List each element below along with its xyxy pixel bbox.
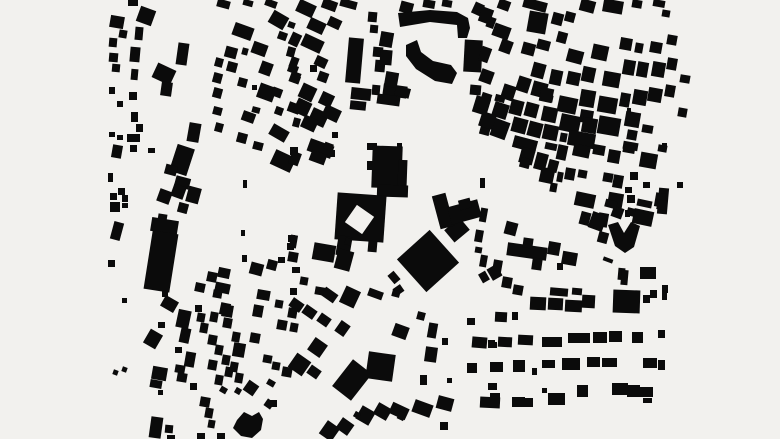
building-footprint <box>288 71 301 85</box>
building-footprint <box>217 433 225 439</box>
building-footprint <box>167 435 175 439</box>
building-footprint <box>488 342 497 348</box>
building-footprint <box>541 106 559 124</box>
building-footprint <box>319 420 340 439</box>
building-footprint <box>574 191 596 209</box>
building-footprint <box>177 202 189 214</box>
building-footprint <box>475 246 483 253</box>
building-footprint <box>370 25 379 34</box>
building-footprint <box>622 59 636 76</box>
building-footprint <box>292 267 300 273</box>
building-footprint <box>592 144 606 156</box>
building-footprint <box>624 111 641 128</box>
building-footprint <box>447 378 452 383</box>
building-footprint <box>619 37 633 51</box>
figure-ground-map <box>0 0 780 439</box>
building-footprint <box>194 282 206 293</box>
building-footprint <box>365 351 395 381</box>
building-footprint <box>603 256 614 263</box>
building-footprint <box>658 330 665 338</box>
building-footprint <box>436 395 455 412</box>
building-footprint <box>207 359 218 370</box>
building-footprint <box>548 393 565 405</box>
building-footprint <box>367 288 384 301</box>
building-footprint <box>281 366 293 378</box>
building-footprint <box>131 69 139 81</box>
building-footprint <box>268 10 290 31</box>
building-footprint <box>207 419 215 428</box>
building-footprint <box>278 257 285 263</box>
building-footprint <box>109 132 115 137</box>
building-footprint <box>424 346 438 363</box>
building-footprint <box>677 107 687 117</box>
building-footprint <box>117 101 123 107</box>
building-footprint <box>597 115 622 137</box>
building-footprint <box>122 195 128 202</box>
building-footprint <box>252 304 264 318</box>
building-footprint <box>162 290 168 297</box>
building-footprint <box>117 135 123 140</box>
building-footprint <box>339 0 357 10</box>
building-footprint <box>262 354 272 363</box>
building-footprint <box>184 351 196 368</box>
building-footprint <box>640 387 653 397</box>
building-footprint <box>581 66 597 83</box>
building-footprint <box>515 75 532 93</box>
building-footprint <box>634 42 644 53</box>
building-footprint <box>556 144 569 161</box>
building-footprint <box>204 407 214 418</box>
building-footprint <box>548 298 564 311</box>
building-footprint <box>217 267 231 279</box>
building-footprint <box>212 289 222 298</box>
building-footprint <box>129 47 140 63</box>
building-footprint <box>196 312 205 322</box>
building-footprint <box>551 12 565 26</box>
building-footprint <box>176 372 187 383</box>
building-footprint <box>501 276 513 289</box>
building-footprint <box>199 396 211 408</box>
building-footprint <box>221 354 231 365</box>
building-footprint <box>581 117 598 134</box>
building-footprint <box>613 290 641 314</box>
building-footprint <box>467 318 475 325</box>
building-footprint <box>368 12 378 23</box>
building-footprint <box>266 259 278 271</box>
building-footprint <box>530 62 546 80</box>
building-footprint <box>420 375 427 385</box>
building-footprint <box>122 203 128 208</box>
building-footprint <box>344 238 351 246</box>
building-footprint <box>206 271 218 283</box>
building-footprint <box>602 71 621 89</box>
building-footprint <box>345 37 364 83</box>
building-footprint <box>559 132 567 142</box>
building-footprint <box>549 182 557 192</box>
building-footprint <box>632 332 643 343</box>
building-footprint <box>562 358 580 370</box>
building-footprint <box>256 289 271 301</box>
building-footprint <box>488 383 497 390</box>
building-footprint <box>224 46 238 60</box>
building-footprint <box>498 337 513 348</box>
building-footprint <box>306 364 322 379</box>
building-footprint-polygon <box>608 222 640 253</box>
building-footprint <box>647 87 663 103</box>
building-footprint <box>136 124 143 132</box>
building-footprint <box>513 360 525 372</box>
building-footprint <box>350 100 367 111</box>
building-footprint <box>625 187 632 193</box>
building-footprint <box>307 337 328 358</box>
building-footprint <box>530 297 547 311</box>
building-footprint <box>128 0 138 6</box>
building-footprint-polygon <box>233 412 263 438</box>
building-footprint <box>241 230 245 236</box>
building-footprint <box>292 117 301 128</box>
building-footprint <box>221 304 234 318</box>
building-footprint <box>276 319 288 331</box>
building-footprint <box>391 323 410 340</box>
building-footprint <box>129 92 137 100</box>
building-footprint <box>108 173 113 182</box>
building-footprint <box>397 230 459 292</box>
building-footprint <box>249 332 261 344</box>
building-footprint <box>631 0 642 9</box>
building-footprint <box>121 366 127 372</box>
building-footprint <box>264 0 278 9</box>
building-footprint <box>661 9 670 17</box>
building-footprint <box>602 0 624 15</box>
building-footprint <box>411 399 433 418</box>
building-footprint <box>110 202 120 212</box>
building-footprint <box>636 61 649 78</box>
building-footprint-polygon <box>406 40 457 84</box>
building-footprint <box>122 298 127 303</box>
building-footprint <box>398 160 408 188</box>
building-footprint <box>234 372 244 383</box>
building-footprint <box>160 81 173 96</box>
building-footprint <box>148 148 155 153</box>
building-footprint <box>522 0 548 13</box>
building-footprint <box>523 102 539 119</box>
building-footprint <box>643 398 652 403</box>
building-footprint <box>136 6 157 27</box>
building-footprint <box>367 161 374 170</box>
building-footprint <box>651 61 666 78</box>
building-footprint <box>679 74 690 84</box>
building-footprint <box>577 169 587 178</box>
building-footprint <box>480 178 485 188</box>
building-footprint <box>310 65 317 72</box>
building-footprint <box>270 400 277 407</box>
building-footprint <box>542 388 547 393</box>
building-footprint <box>579 0 597 14</box>
building-footprint <box>442 338 448 345</box>
building-footprint <box>110 221 124 241</box>
building-footprint <box>658 360 665 370</box>
building-footprint <box>512 397 525 407</box>
building-footprint <box>542 124 560 142</box>
building-footprint <box>243 380 260 397</box>
building-footprint <box>602 358 617 367</box>
building-footprint <box>130 145 137 152</box>
building-footprint <box>242 0 253 7</box>
building-footprint <box>287 307 298 318</box>
building-footprint <box>195 305 202 312</box>
building-footprint <box>498 38 514 54</box>
building-footprint <box>497 0 512 12</box>
building-footprint <box>241 47 249 55</box>
building-footprint <box>108 260 115 267</box>
building-footprint <box>258 60 274 76</box>
building-footprint <box>158 390 163 395</box>
building-footprint <box>619 92 631 108</box>
building-footprint <box>252 141 264 151</box>
building-footprint <box>597 95 618 114</box>
building-footprint <box>564 167 576 181</box>
building-footprint <box>531 257 543 270</box>
building-footprint <box>251 106 260 114</box>
building-footprint <box>550 287 569 297</box>
building-footprint <box>579 89 597 108</box>
building-footprint <box>532 368 537 375</box>
building-footprint <box>510 116 528 134</box>
building-footprint <box>134 27 143 41</box>
building-footprint <box>664 84 676 98</box>
building-footprint <box>549 69 564 86</box>
building-footprint <box>252 85 257 90</box>
building-footprint <box>440 422 448 430</box>
building-footprint <box>636 199 652 209</box>
building-footprint <box>602 172 613 183</box>
building-footprint <box>144 230 179 292</box>
building-footprint <box>109 53 119 63</box>
building-footprint <box>643 295 650 303</box>
building-footprint <box>332 132 338 138</box>
building-footprint <box>632 89 648 106</box>
building-footprint <box>301 304 317 320</box>
building-footprint <box>542 337 562 347</box>
building-footprint <box>317 71 330 84</box>
building-footprint <box>118 188 125 195</box>
building-footprint <box>480 340 485 347</box>
building-footprint <box>286 46 296 58</box>
building-footprint <box>229 361 239 372</box>
building-footprint <box>190 383 197 390</box>
building-footprint <box>175 309 191 329</box>
building-footprint <box>490 393 500 402</box>
building-footprint <box>508 99 524 117</box>
building-footprint <box>387 271 400 285</box>
building-footprint <box>479 254 488 267</box>
building-footprint <box>620 270 628 286</box>
building-footprint <box>544 142 557 151</box>
building-footprint <box>379 50 392 66</box>
building-footprint <box>416 311 426 321</box>
building-footprint <box>234 387 242 395</box>
building-footprint <box>165 425 174 434</box>
building-footprint <box>110 193 117 200</box>
building-footprint <box>226 61 238 73</box>
building-footprint <box>212 106 223 116</box>
building-footprint <box>556 31 569 44</box>
building-footprint <box>379 31 394 48</box>
building-footprint <box>243 180 247 188</box>
building-footprint <box>274 299 283 308</box>
building-footprint <box>212 72 223 84</box>
building-footprint <box>467 363 477 373</box>
building-footprint <box>566 71 581 86</box>
building-footprint <box>564 11 576 23</box>
building-footprint <box>321 0 339 12</box>
building-footprint <box>565 300 583 313</box>
building-footprint <box>266 378 276 387</box>
building-footprint <box>149 379 162 389</box>
building-footprint <box>568 333 590 343</box>
building-footprint <box>299 276 308 285</box>
building-footprint <box>231 22 254 41</box>
building-footprint <box>214 122 224 133</box>
building-footprint <box>512 312 518 320</box>
building-footprint <box>175 347 182 353</box>
building-footprint <box>557 95 579 115</box>
building-footprint <box>250 41 268 57</box>
building-footprint <box>232 342 246 358</box>
building-footprint <box>470 85 482 96</box>
building-footprint <box>222 317 233 328</box>
building-footprint <box>316 312 332 327</box>
building-footprint <box>289 322 298 332</box>
building-footprint <box>231 331 241 342</box>
building-footprint <box>609 331 622 342</box>
building-footprint <box>300 33 325 54</box>
building-footprint <box>557 263 563 270</box>
building-footprint <box>591 44 610 62</box>
building-footprint <box>368 241 378 253</box>
building-footprint <box>662 285 668 293</box>
building-footprint <box>542 360 555 368</box>
building-footprint <box>207 334 218 345</box>
building-footprint <box>493 362 503 372</box>
building-footprint <box>627 195 635 203</box>
building-footprint <box>199 322 209 333</box>
building-footprint <box>109 38 118 48</box>
building-footprint <box>582 295 596 309</box>
building-footprint <box>151 366 168 381</box>
building-footprint <box>176 42 190 65</box>
building-footprint <box>495 312 508 323</box>
building-footprint <box>639 152 658 170</box>
building-footprint <box>288 31 303 47</box>
building-footprint <box>630 172 638 180</box>
building-footprint <box>536 38 551 51</box>
building-footprint <box>328 150 335 157</box>
building-footprint <box>441 0 452 8</box>
building-footprint <box>512 284 524 296</box>
building-footprint <box>268 123 290 142</box>
building-footprint <box>626 129 638 141</box>
building-footprint <box>593 332 607 343</box>
building-footprint <box>526 11 548 35</box>
building-footprint <box>158 322 165 328</box>
building-footprint <box>597 231 610 244</box>
building-footprint <box>295 0 317 18</box>
building-footprint <box>422 0 435 9</box>
building-footprint <box>143 329 163 350</box>
building-footprint <box>662 293 667 300</box>
building-footprint <box>214 57 224 68</box>
building-footprint <box>334 320 350 337</box>
building-footprint <box>287 251 299 263</box>
building-footprint <box>652 0 665 8</box>
building-footprint <box>640 267 656 279</box>
building-footprint <box>216 0 231 10</box>
building-footprint <box>566 48 585 65</box>
building-footprint <box>521 42 537 57</box>
building-footprint <box>149 416 164 438</box>
building-footprint <box>156 188 173 205</box>
building-footprint <box>271 361 280 370</box>
building-footprint <box>612 383 628 395</box>
building-footprint <box>627 385 640 397</box>
building-footprint <box>491 22 511 40</box>
building-footprint <box>572 288 583 296</box>
building-footprint <box>112 64 121 73</box>
building-footprint <box>249 262 265 277</box>
building-footprint <box>474 229 484 242</box>
building-footprint <box>127 134 140 142</box>
building-footprint <box>607 149 621 164</box>
building-footprints-svg <box>0 0 780 439</box>
building-footprint <box>336 417 355 436</box>
building-footprint <box>650 290 657 298</box>
building-footprint <box>287 21 296 29</box>
building-footprint <box>339 285 361 308</box>
building-footprint <box>312 242 337 263</box>
building-footprint <box>131 112 138 122</box>
building-footprint <box>350 87 371 101</box>
building-footprint <box>237 77 248 88</box>
building-footprint <box>577 385 588 397</box>
building-footprint <box>561 251 578 266</box>
building-footprint <box>643 358 657 368</box>
building-footprint <box>472 336 488 348</box>
building-footprint <box>290 288 297 295</box>
building-footprint <box>212 87 223 99</box>
building-footprint <box>643 182 650 188</box>
building-footprint <box>666 34 678 46</box>
building-footprint <box>214 374 224 385</box>
building-footprint <box>306 17 326 35</box>
building-footprint <box>556 172 564 183</box>
building-footprint <box>118 29 127 38</box>
building-footprint <box>504 221 519 237</box>
building-footprint <box>179 327 192 344</box>
building-footprint <box>274 106 284 116</box>
building-footprint <box>219 386 228 395</box>
building-footprint <box>427 322 438 338</box>
building-footprint <box>109 87 115 94</box>
building-footprint <box>332 359 372 401</box>
building-footprint <box>209 311 219 322</box>
building-footprint <box>587 357 600 367</box>
building-footprint <box>677 182 683 188</box>
building-footprint <box>242 255 247 262</box>
building-footprint <box>197 433 205 439</box>
building-footprint-polygon <box>398 10 470 38</box>
building-footprint <box>478 271 490 284</box>
